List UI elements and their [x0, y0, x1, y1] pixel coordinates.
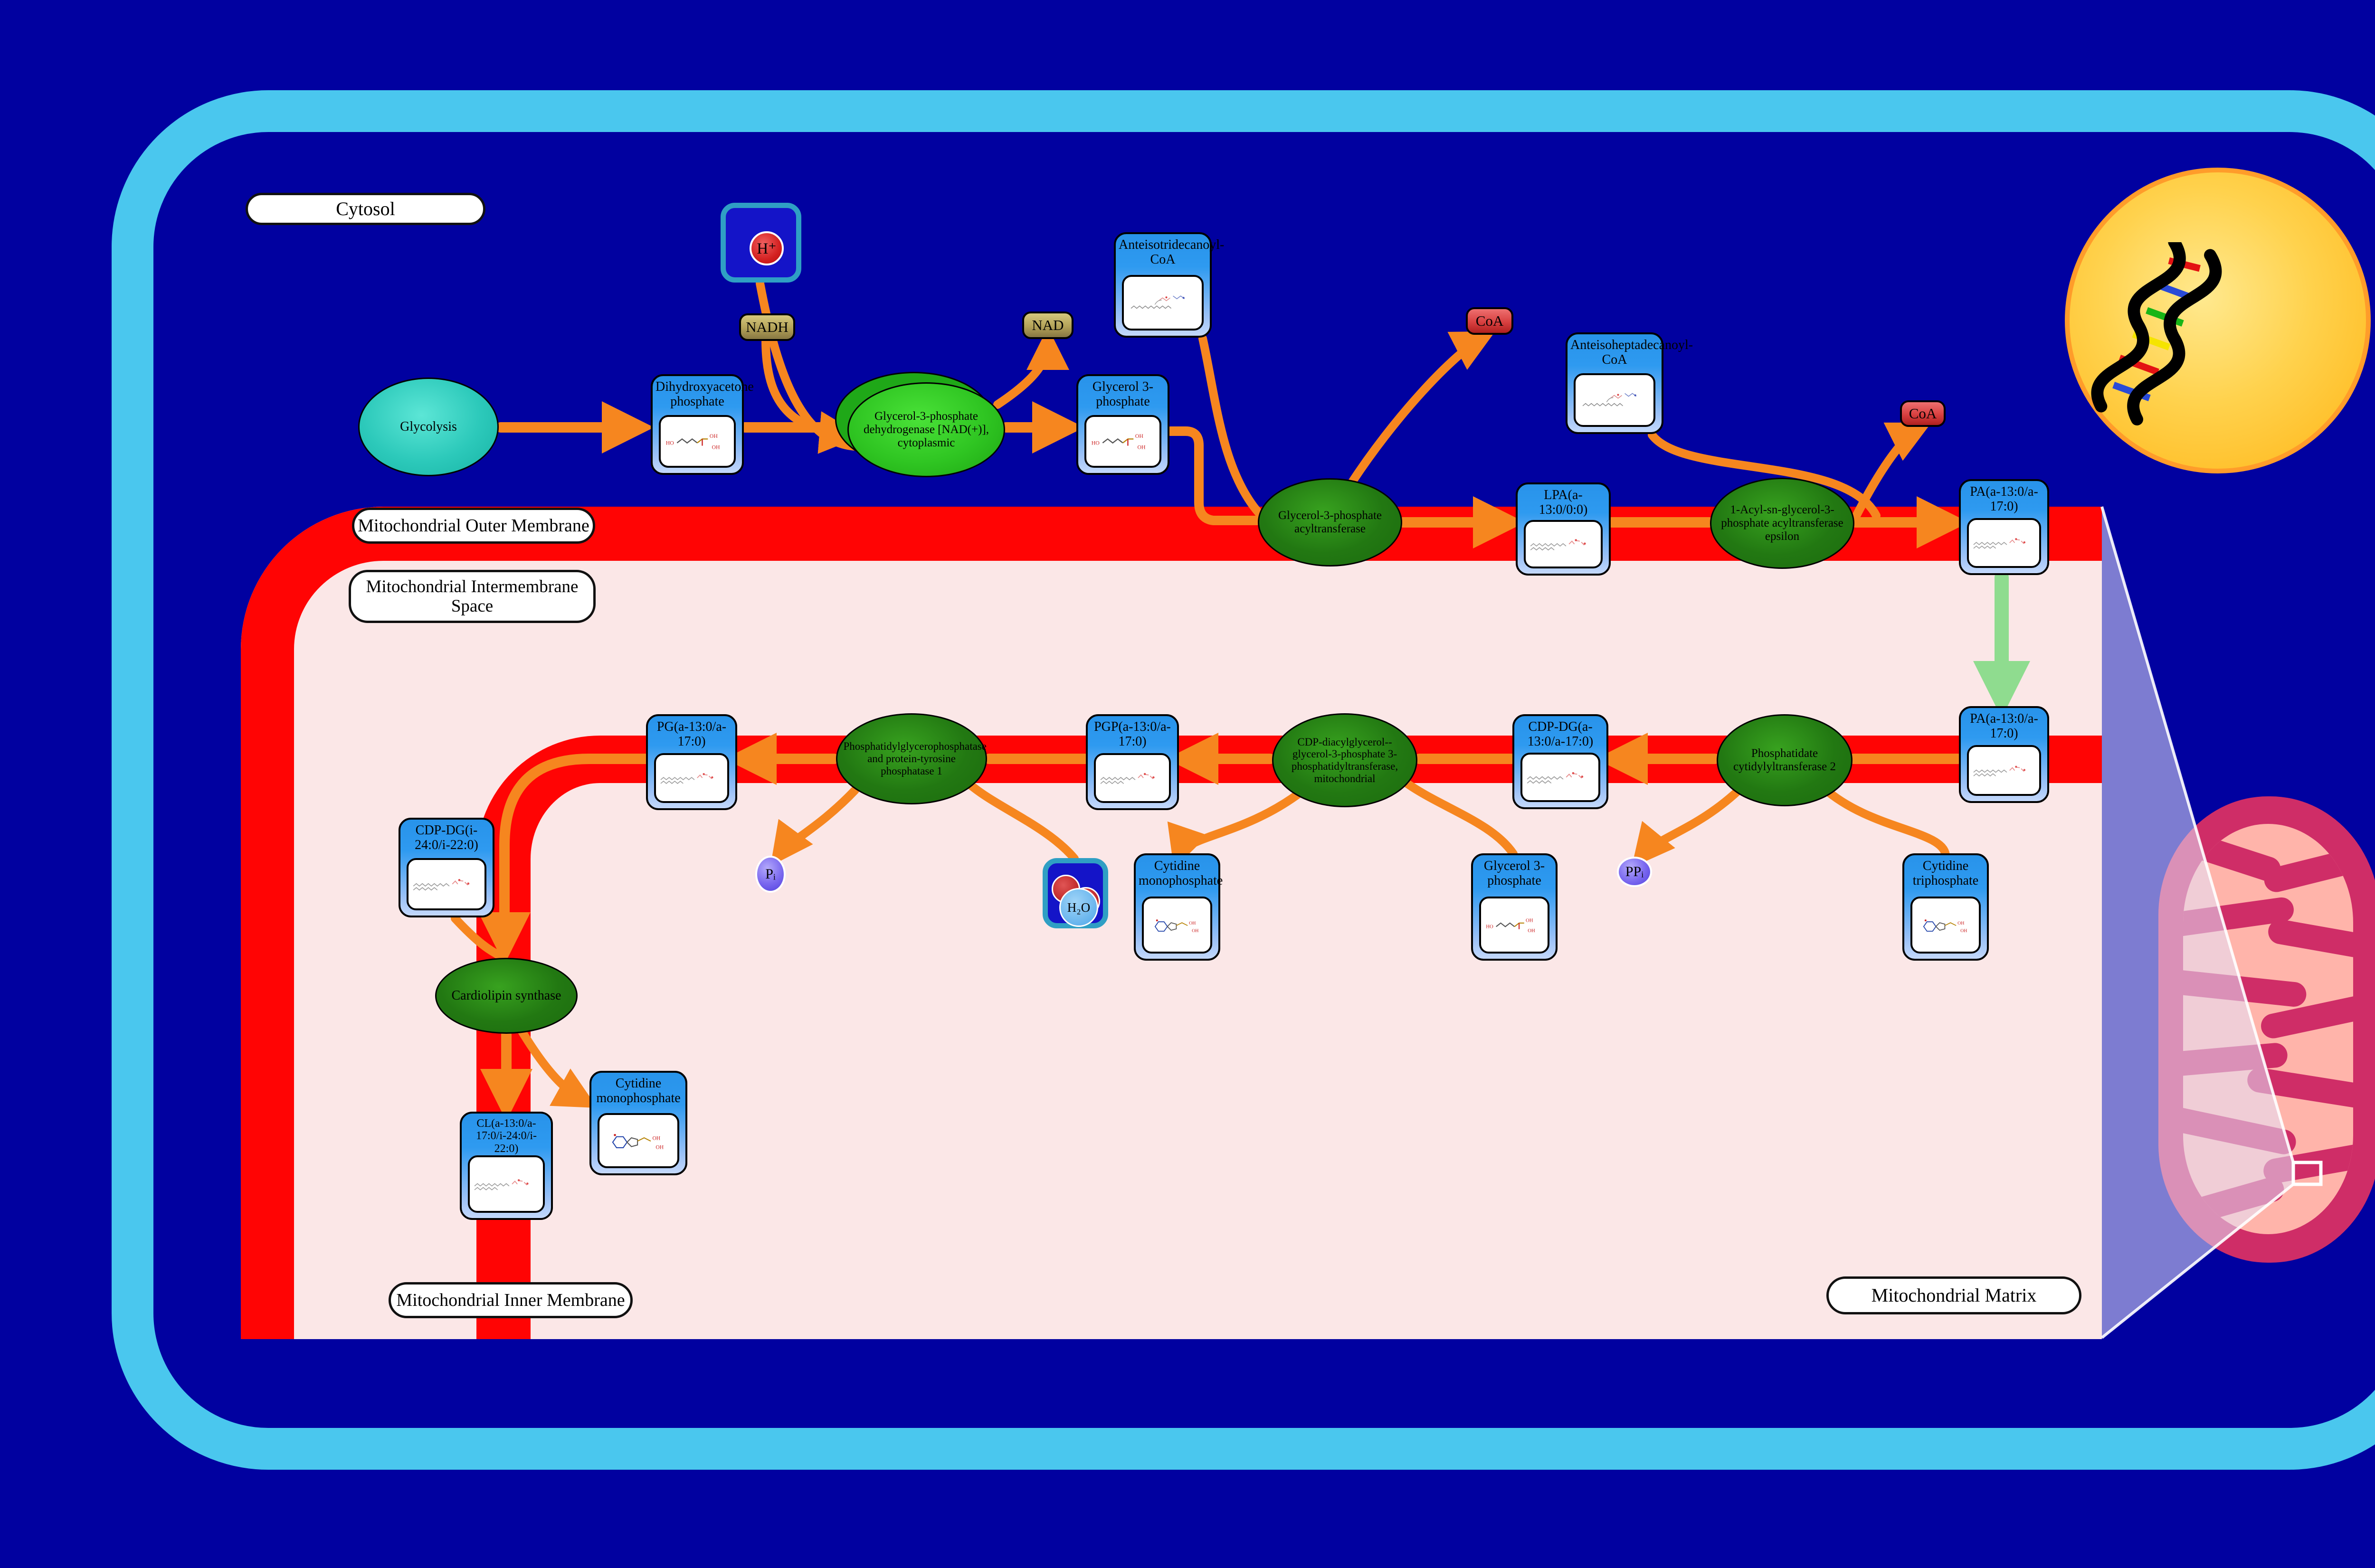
- water-icon: H₂O: [1059, 888, 1098, 927]
- enzyme-node-ptpmt1[interactable]: Phosphatidylglycerophosphatase and prote…: [836, 713, 987, 804]
- chemical-structure-icon: [473, 1165, 540, 1203]
- enzyme-label: Phosphatidylglycerophosphatase and prote…: [843, 740, 979, 777]
- chemical-structure-icon: [1579, 383, 1651, 417]
- metabolite-label: Cytidine monophosphate: [594, 1077, 683, 1106]
- chemical-structure-icon: OHOH: [1915, 907, 1976, 944]
- chemical-structure-icon: OHOH: [603, 1123, 674, 1159]
- enzyme-node-pcyt2[interactable]: Phosphatidate cytidylyltransferase 2: [1717, 714, 1852, 806]
- region-label-text: Mitochondrial Inner Membrane: [396, 1290, 625, 1311]
- metabolite-node-lpa[interactable]: LPA(a-13:0/0:0): [1516, 482, 1611, 576]
- enzyme-node-crls1[interactable]: Cardiolipin synthase: [435, 958, 578, 1034]
- metabolite-label: CDP-DG(i-24:0/i-22:0): [403, 823, 490, 853]
- metabolite-label: Glycerol 3-phosphate: [1081, 380, 1165, 409]
- metabolite-node-ctp[interactable]: Cytidine triphosphateOHOH: [1902, 853, 1989, 961]
- region-label-matrix: Mitochondrial Matrix: [1826, 1276, 2081, 1314]
- chemical-structure-icon: [1972, 527, 2036, 559]
- metabolite-label: Dihydroxyacetone phosphate: [655, 380, 739, 409]
- chemical-structure-icon: OHOH: [1147, 907, 1208, 944]
- svg-text:HO: HO: [666, 439, 674, 446]
- structure-box: [1967, 518, 2041, 568]
- svg-text:OH: OH: [1192, 928, 1198, 934]
- structure-box: HOOHOH: [659, 415, 736, 468]
- metabolite-node-cdp_dg_a[interactable]: CDP-DG(a-13:0/a-17:0): [1512, 714, 1608, 809]
- chemical-structure-icon: [1525, 761, 1595, 793]
- structure-box: [1520, 753, 1600, 802]
- svg-text:OH: OH: [1189, 921, 1196, 926]
- chemical-structure-icon: HOOHOH: [1484, 907, 1545, 944]
- structure-box: OHOH: [598, 1113, 679, 1168]
- structure-box: [654, 753, 729, 803]
- region-label-text: Mitochondrial Intermembrane Space: [351, 577, 593, 616]
- svg-text:HO: HO: [1486, 924, 1493, 930]
- structure-box: [1524, 520, 1603, 568]
- svg-text:OH: OH: [1526, 918, 1533, 924]
- metabolite-node-cmp_inner[interactable]: Cytidine monophosphateOHOH: [589, 1071, 687, 1175]
- structure-box: HOOHOH: [1479, 897, 1549, 954]
- region-label-intermembrane-space: Mitochondrial Intermembrane Space: [349, 570, 596, 623]
- enzyme-node-agpat_epsilon[interactable]: 1-Acyl-sn-glycerol-3-phosphate acyltrans…: [1710, 478, 1854, 569]
- structure-box: [1967, 745, 2041, 796]
- metabolite-node-anteisoheptadecanoyl_coa[interactable]: Anteisoheptadecanoyl-CoA: [1566, 332, 1663, 434]
- pathway-diagram-canvas: Cytosol Mitochondrial Outer Membrane Mit…: [0, 0, 2375, 1568]
- svg-text:OH: OH: [1957, 921, 1964, 926]
- enzyme-node-glycolysis[interactable]: Glycolysis: [358, 378, 499, 476]
- structure-box: HOOHOH: [1084, 415, 1161, 468]
- enzyme-label: 1-Acyl-sn-glycerol-3-phosphate acyltrans…: [1717, 503, 1847, 543]
- region-label-text: Mitochondrial Matrix: [1871, 1285, 2037, 1306]
- region-label-outer-membrane: Mitochondrial Outer Membrane: [352, 508, 595, 544]
- metabolite-label: CDP-DG(a-13:0/a-17:0): [1517, 720, 1604, 749]
- metabolite-node-anteisotridecanoyl_coa[interactable]: Anteisotridecanoyl-CoA: [1114, 232, 1212, 338]
- chemical-structure-icon: [411, 867, 481, 901]
- metabolite-label: PA(a-13:0/a-17:0): [1964, 712, 2044, 741]
- metabolite-label: LPA(a-13:0/0:0): [1520, 488, 1606, 518]
- metabolite-node-dhap[interactable]: Dihydroxyacetone phosphateHOOHOH: [651, 374, 744, 475]
- structure-box: OHOH: [1142, 897, 1212, 954]
- enzyme-node-gpat[interactable]: Glycerol-3-phosphate acyltransferase: [1258, 478, 1402, 567]
- metabolite-label: Cytidine monophosphate: [1139, 859, 1216, 888]
- metabolite-node-g3p_cytosol[interactable]: Glycerol 3-phosphateHOOHOH: [1076, 374, 1169, 475]
- chemical-structure-icon: [1127, 284, 1199, 321]
- metabolite-label: Anteisoheptadecanoyl-CoA: [1570, 338, 1659, 368]
- small-molecule-nadh[interactable]: NADH: [739, 313, 795, 341]
- svg-text:OH: OH: [710, 433, 718, 439]
- metabolite-label: PGP(a-13:0/a-17:0): [1091, 720, 1174, 749]
- svg-text:OH: OH: [712, 444, 721, 451]
- enzyme-node-cds[interactable]: CDP-diacylglycerol--glycerol-3-phosphate…: [1272, 713, 1417, 807]
- metabolite-node-pgp[interactable]: PGP(a-13:0/a-17:0): [1086, 714, 1179, 810]
- enzyme-label: Phosphatidate cytidylyltransferase 2: [1723, 747, 1846, 774]
- metabolite-node-pa_outer[interactable]: PA(a-13:0/a-17:0): [1959, 479, 2049, 575]
- region-label-text: Mitochondrial Outer Membrane: [358, 516, 589, 536]
- metabolite-node-g3p_matrix[interactable]: Glycerol 3-phosphateHOOHOH: [1471, 853, 1558, 961]
- structure-box: [1574, 373, 1655, 427]
- metabolite-label: Anteisotridecanoyl-CoA: [1119, 238, 1207, 267]
- metabolite-node-pa_matrix[interactable]: PA(a-13:0/a-17:0): [1959, 706, 2049, 803]
- metabolite-node-cl[interactable]: CL(a-13:0/a-17:0/i-24:0/i-22:0): [460, 1112, 553, 1220]
- enzyme-label: Glycerol-3-phosphate acyltransferase: [1265, 509, 1395, 536]
- chemical-structure-icon: HOOHOH: [664, 424, 731, 458]
- proton-icon: H⁺: [750, 231, 784, 265]
- structure-box: [407, 858, 486, 910]
- small-molecule-pi[interactable]: Pᵢ: [755, 856, 786, 893]
- small-molecule-coa_2[interactable]: CoA: [1900, 400, 1946, 427]
- metabolite-label: Glycerol 3-phosphate: [1476, 859, 1553, 888]
- small-molecule-h2o[interactable]: H₂O: [1043, 858, 1108, 928]
- metabolite-label: PA(a-13:0/a-17:0): [1964, 485, 2044, 514]
- svg-text:OH: OH: [655, 1144, 664, 1150]
- structure-box: [468, 1155, 545, 1213]
- enzyme-label: Glycolysis: [365, 419, 492, 434]
- svg-text:OH: OH: [1528, 928, 1535, 934]
- small-molecule-h_plus[interactable]: H⁺: [721, 203, 801, 283]
- svg-text:OH: OH: [1138, 444, 1146, 451]
- metabolite-node-pg[interactable]: PG(a-13:0/a-17:0): [646, 714, 737, 810]
- svg-text:HO: HO: [1092, 439, 1100, 446]
- chemical-structure-icon: [1099, 762, 1166, 794]
- chemical-structure-icon: HOOHOH: [1089, 424, 1157, 458]
- structure-box: OHOH: [1910, 897, 1981, 954]
- enzyme-label: Cardiolipin synthase: [442, 988, 570, 1003]
- enzyme-label: Glycerol-3-phosphate dehydrogenase [NAD(…: [855, 410, 997, 450]
- small-molecule-coa_1[interactable]: CoA: [1466, 307, 1513, 335]
- enzyme-label: CDP-diacylglycerol--glycerol-3-phosphate…: [1279, 736, 1410, 785]
- small-molecule-nad[interactable]: NAD: [1022, 312, 1073, 339]
- chemical-structure-icon: [1529, 529, 1597, 560]
- svg-text:OH: OH: [1960, 928, 1967, 934]
- metabolite-label: CL(a-13:0/a-17:0/i-24:0/i-22:0): [465, 1117, 548, 1155]
- chemical-structure-icon: [659, 762, 724, 794]
- chemical-structure-icon: [1972, 754, 2036, 787]
- region-label-cytosol: Cytosol: [246, 193, 485, 225]
- metabolite-node-cdp_dg_i[interactable]: CDP-DG(i-24:0/i-22:0): [399, 818, 494, 917]
- svg-text:OH: OH: [1135, 433, 1144, 439]
- structure-box: [1122, 275, 1204, 331]
- metabolite-label: Cytidine triphosphate: [1907, 859, 1984, 888]
- small-molecule-ppi[interactable]: PPᵢ: [1617, 857, 1652, 887]
- enzyme-node-gpd1[interactable]: Glycerol-3-phosphate dehydrogenase [NAD(…: [847, 382, 1005, 477]
- structure-box: [1094, 753, 1171, 803]
- region-label-inner-membrane: Mitochondrial Inner Membrane: [389, 1282, 633, 1318]
- region-label-text: Cytosol: [336, 198, 395, 220]
- metabolite-label: PG(a-13:0/a-17:0): [651, 720, 732, 749]
- metabolite-node-cmp_matrix[interactable]: Cytidine monophosphateOHOH: [1134, 853, 1220, 961]
- svg-text:OH: OH: [652, 1135, 660, 1142]
